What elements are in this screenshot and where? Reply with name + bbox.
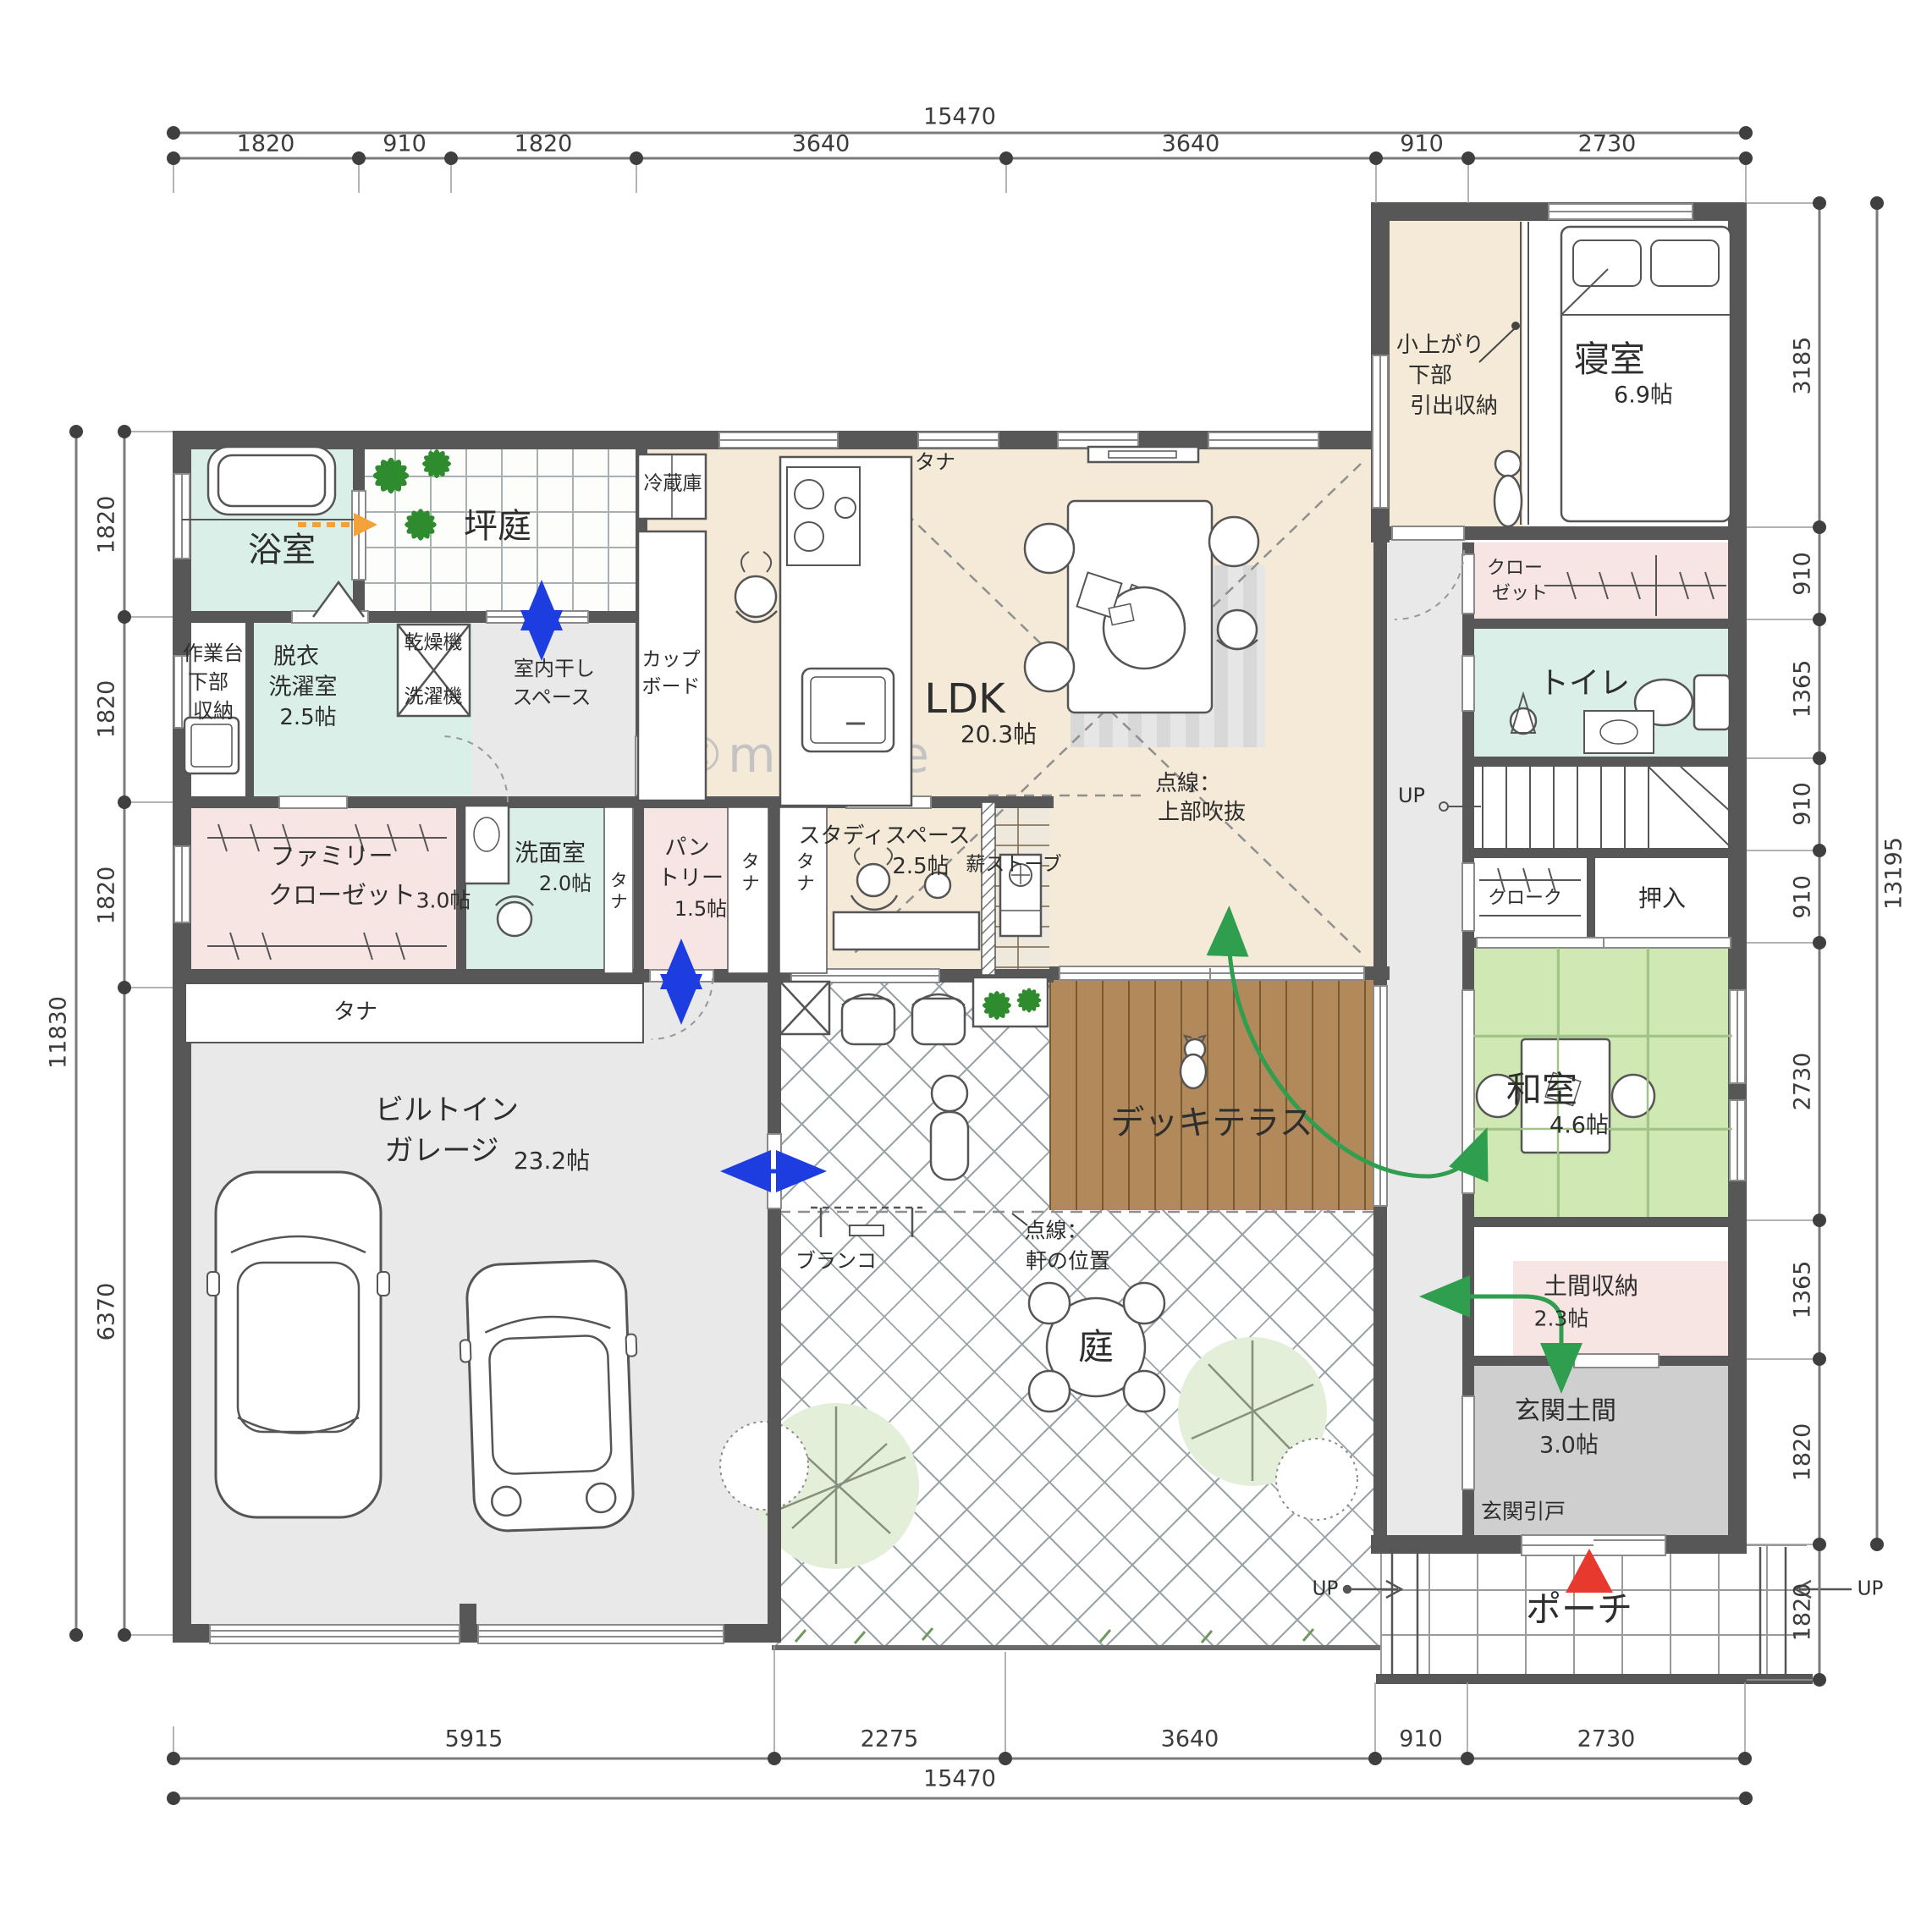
- car-1: [207, 1172, 389, 1517]
- label-cloak: クローク: [1488, 889, 1562, 908]
- label-dryer: 乾燥機: [405, 634, 463, 653]
- dim-top-seg: 2730: [1578, 133, 1637, 156]
- label-closet: ゼット: [1492, 585, 1548, 603]
- label-bedroom-note: 下部: [1408, 365, 1452, 387]
- dim-right-total: 13195: [1883, 837, 1906, 910]
- dim-bottom-total: 15470: [923, 1768, 996, 1791]
- label-shelf-study: タナ: [794, 851, 812, 895]
- label-ldk-size: 20.3帖: [960, 723, 1037, 746]
- dim-left-seg: 6370: [96, 1283, 118, 1341]
- label-shelf-garage: タナ: [333, 1001, 377, 1023]
- label-cupboard: ボード: [642, 678, 701, 697]
- label-bedroom-size: 6.9帖: [1614, 384, 1673, 407]
- dim-right-seg: 1365: [1792, 660, 1814, 718]
- label-tsuboniwa: 坪庭: [464, 509, 531, 543]
- label-pantry-size: 1.5帖: [674, 899, 727, 919]
- label-workbench: 下部: [188, 672, 228, 692]
- dim-right-seg: 1365: [1792, 1261, 1814, 1319]
- dim-bottom-seg: 910: [1399, 1728, 1443, 1751]
- label-study-size: 2.5帖: [892, 856, 949, 878]
- furniture: [182, 222, 1731, 1412]
- label-ldk: LDK: [924, 679, 1005, 719]
- plan-linework: [0, 0, 1932, 1932]
- dim-right-seg: 1820: [1792, 1583, 1814, 1642]
- label-fridge: 冷蔵庫: [644, 475, 702, 494]
- label-garden: 庭: [1078, 1329, 1114, 1365]
- label-washitsu-size: 4.6帖: [1549, 1115, 1609, 1137]
- dim-right-seg: 910: [1792, 552, 1814, 596]
- label-bedroom: 寝室: [1574, 342, 1645, 377]
- dim-top-total: 15470: [923, 106, 996, 129]
- dim-bottom-seg: 5915: [445, 1728, 504, 1751]
- label-fc: ファミリー: [270, 845, 393, 869]
- dim-left-seg: 1820: [96, 867, 118, 925]
- dim-right-seg: 1820: [1792, 1423, 1814, 1482]
- plant: [422, 449, 452, 479]
- stove-heat-shield: [982, 802, 995, 975]
- dim-left-seg: 1820: [96, 496, 118, 554]
- label-stove: 薪ストーブ: [966, 856, 1062, 875]
- dim-top-seg: 3640: [792, 133, 850, 156]
- label-swing: ブランコ: [795, 1251, 877, 1271]
- dim-right-seg: 910: [1792, 782, 1814, 826]
- plant: [405, 509, 437, 541]
- label-pantry: パン: [664, 837, 709, 859]
- label-eaves-note: 点線：: [1024, 1220, 1087, 1241]
- label-shelf-powder: タナ: [609, 871, 627, 913]
- label-washitsu: 和室: [1506, 1072, 1577, 1108]
- label-void-note: 上部吹抜: [1158, 801, 1246, 823]
- label-up-stairs: UP: [1398, 785, 1425, 806]
- label-laundry: 脱衣: [273, 646, 319, 669]
- dim-right-seg: 2730: [1792, 1053, 1814, 1111]
- dim-right-seg: 910: [1792, 875, 1814, 919]
- dim-top-seg: 1820: [515, 133, 573, 156]
- label-garage-size: 23.2帖: [514, 1149, 590, 1173]
- label-bath: 浴室: [248, 533, 316, 567]
- label-eaves-note: 軒の位置: [1026, 1251, 1110, 1272]
- dim-right-seg: 3185: [1792, 337, 1814, 395]
- label-doma: 土間収納: [1544, 1274, 1638, 1298]
- label-laundry-size: 2.5帖: [279, 707, 336, 729]
- label-void-note: 点線：: [1155, 773, 1221, 795]
- label-closet: クロー: [1487, 559, 1543, 578]
- label-drying: 室内干し: [514, 658, 595, 679]
- dim-top-seg: 910: [383, 133, 427, 156]
- dim-bottom-seg: 2275: [861, 1728, 919, 1751]
- label-genkan-door: 玄関引戸: [1481, 1501, 1566, 1522]
- label-doma-size: 2.3帖: [1534, 1308, 1589, 1329]
- car-2: [458, 1259, 643, 1532]
- dim-left-total: 11830: [47, 996, 70, 1069]
- label-genkan-size: 3.0帖: [1539, 1434, 1599, 1457]
- plant: [372, 457, 410, 494]
- label-deck: デッキテラス: [1110, 1106, 1313, 1140]
- dim-top-seg: 3640: [1162, 133, 1220, 156]
- label-garage: ガレージ: [384, 1137, 498, 1165]
- label-up-porch-left: UP: [1313, 1580, 1339, 1599]
- label-garage: ビルトイン: [375, 1096, 519, 1125]
- label-powder-size: 2.0帖: [539, 873, 592, 894]
- label-study: スタディスペース: [798, 825, 970, 847]
- label-laundry: 洗濯室: [269, 676, 338, 699]
- label-drying: スペース: [512, 687, 591, 707]
- label-toilet: トイレ: [1538, 669, 1630, 699]
- label-workbench: 収納: [193, 701, 234, 721]
- dim-bottom-seg: 3640: [1161, 1728, 1219, 1751]
- label-oshiire: 押入: [1638, 887, 1686, 911]
- stairs: [1439, 767, 1731, 848]
- dim-top-seg: 1820: [237, 133, 295, 156]
- label-bedroom-note: 引出収納: [1410, 395, 1498, 417]
- dim-top-seg: 910: [1400, 133, 1444, 156]
- label-porch: ポーチ: [1526, 1592, 1632, 1627]
- dim-bottom-seg: 2730: [1577, 1728, 1636, 1751]
- label-fc: クローゼット: [268, 883, 416, 908]
- label-up-porch-right: UP: [1858, 1580, 1884, 1599]
- label-bedroom-note: 小上がり: [1396, 334, 1484, 356]
- label-cupboard: カップ: [642, 651, 701, 670]
- label-shelf-pantry: タナ: [739, 851, 757, 895]
- label-fc-size: 3.0帖: [416, 890, 471, 911]
- dim-left-seg: 1820: [96, 680, 118, 739]
- label-genkan: 玄関土間: [1515, 1399, 1616, 1424]
- label-shelf-kitchen: タナ: [915, 452, 955, 472]
- label-washer: 洗濯機: [405, 688, 463, 707]
- label-pantry: トリー: [658, 867, 724, 889]
- floor-plan: 15470 1820 910 1820 3640 3640 910 2730 5…: [0, 0, 1932, 1932]
- label-workbench: 作業台: [183, 643, 244, 663]
- label-powder: 洗面室: [515, 841, 586, 865]
